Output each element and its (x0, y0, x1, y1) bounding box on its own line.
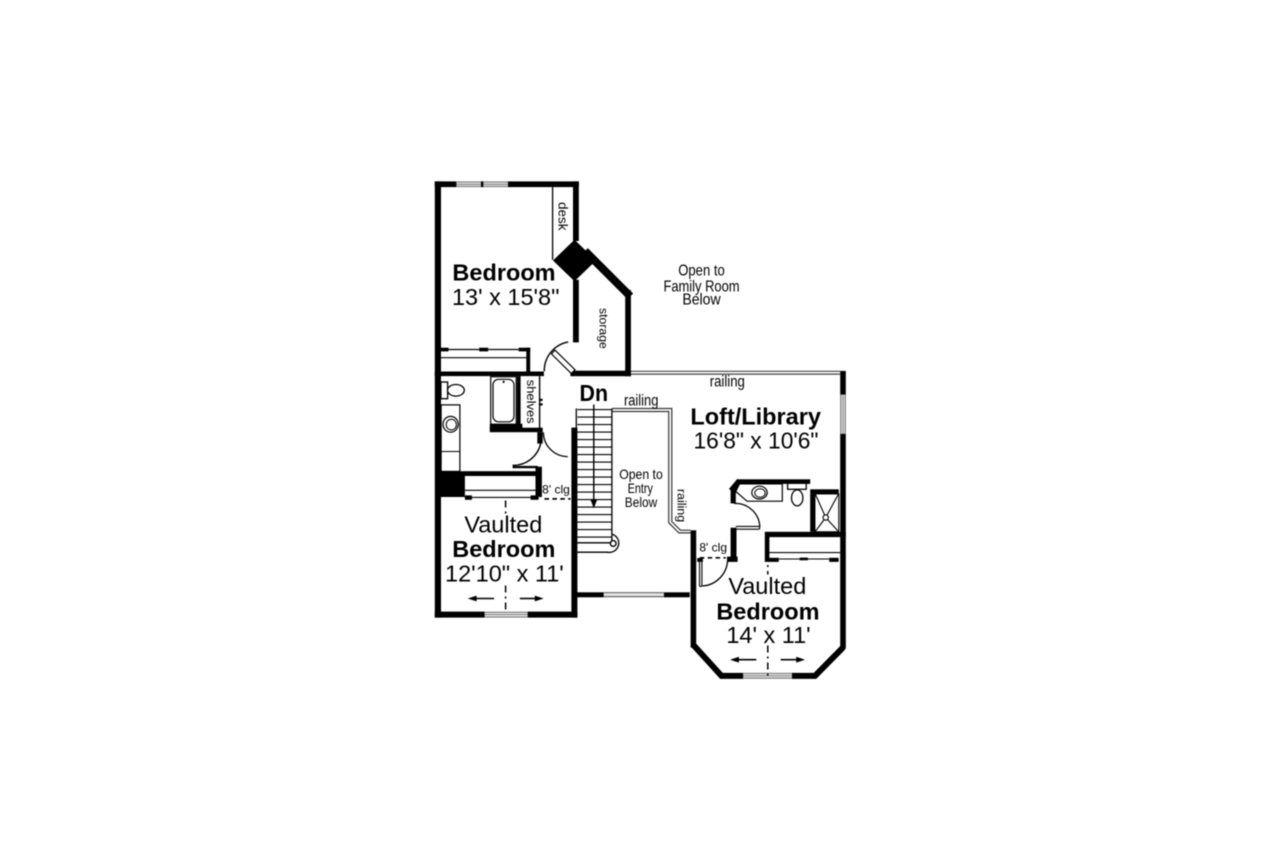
svg-text:Bedroom: Bedroom (452, 259, 555, 285)
svg-text:shelves: shelves (524, 380, 538, 424)
svg-text:railing: railing (675, 489, 689, 523)
svg-text:storage: storage (596, 308, 610, 349)
svg-text:8' clg: 8' clg (699, 541, 727, 555)
svg-text:Below: Below (625, 494, 658, 510)
svg-text:desk: desk (555, 202, 570, 231)
svg-text:16'8" x 10'6": 16'8" x 10'6" (694, 427, 819, 453)
svg-text:railing: railing (710, 374, 745, 391)
svg-text:Bedroom: Bedroom (716, 598, 819, 624)
svg-text:Loft/Library: Loft/Library (690, 403, 821, 429)
svg-text:Bedroom: Bedroom (452, 536, 555, 562)
svg-text:Dn: Dn (580, 380, 609, 406)
svg-text:14' x 11': 14' x 11' (726, 622, 810, 648)
svg-text:railing: railing (624, 393, 659, 410)
svg-text:13' x 15'8": 13' x 15'8" (452, 284, 559, 310)
svg-text:Open to: Open to (678, 263, 725, 280)
svg-text:8' clg: 8' clg (542, 483, 570, 497)
svg-text:Vaulted: Vaulted (464, 512, 542, 538)
svg-text:Below: Below (682, 292, 721, 309)
svg-text:Vaulted: Vaulted (728, 573, 806, 599)
svg-text:12'10" x 11': 12'10" x 11' (445, 560, 564, 586)
